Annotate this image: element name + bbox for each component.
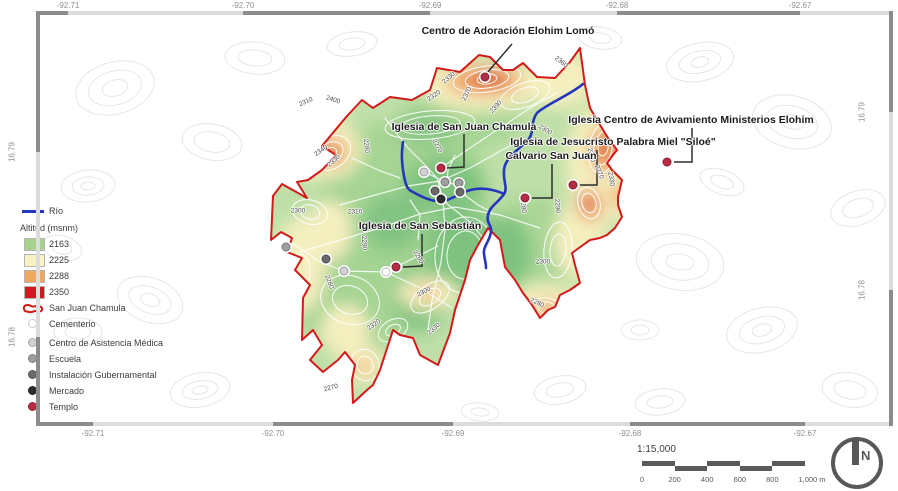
poi-dot-templo [437,164,446,173]
legend-value-2163: 2163 [49,239,69,249]
rio-line-symbol [22,210,44,213]
axis-label-top: -92.69 [419,1,442,10]
frame-bottom [630,422,805,426]
poi-dot-cementerio [382,268,391,277]
axis-label-bottom: -92.71 [82,429,105,438]
legend-swatch-2288 [24,270,45,283]
legend-label-mercado: Mercado [49,386,84,396]
poi-dot-templo [521,194,530,203]
map-label-elohim-lomo: Centro de Adoración Elohim Lomó [422,25,595,37]
axis-label-top: -92.67 [789,1,812,10]
frame-right [889,290,893,426]
map-label-calvario: Calvario San Juan [505,150,596,162]
map-label-san-sebastian: Iglesia de San Sebastián [359,220,482,232]
poi-dot-escuela [455,179,464,188]
north-arrow-label: N [861,448,870,463]
legend-value-2350: 2350 [49,287,69,297]
frame-top [800,11,893,15]
axis-label-bottom: -92.67 [794,429,817,438]
contour-label: 2300 [291,208,305,215]
frame-top [38,11,68,15]
poi-dot-templo [663,158,672,167]
scalebar-tick: 1,000 m [798,475,825,484]
frame-bottom [38,422,93,426]
frame-right [889,112,893,290]
frame-top [243,11,430,15]
frame-top [68,11,243,15]
axis-label-left: 16.79 [8,142,17,162]
axis-label-top: -92.71 [57,1,80,10]
legend-label-escuela: Escuela [49,354,81,364]
scalebar-segment [707,461,740,466]
poi-dot-templo [569,181,578,190]
contour-label: 2310 [348,209,362,216]
legend-swatch-2163 [24,238,45,251]
legend-value-2288: 2288 [49,271,69,281]
legend-rio-label: Río [49,206,63,216]
boundary-symbol [21,301,47,316]
legend-label-centro-asistencia: Centro de Asistencia Médica [49,338,163,348]
scalebar-segment [642,461,675,466]
contour-label: 2290 [360,236,368,251]
frame-left [36,11,40,152]
north-arrow-bar [852,439,859,465]
frame-bottom [93,422,273,426]
axis-label-bottom: -92.69 [442,429,465,438]
poi-dot-escuela [441,178,450,187]
scalebar-tick: 800 [766,475,779,484]
map-label-avivamiento: Iglesia Centro de Avivamiento Ministerio… [568,114,813,126]
legend-swatch-2350 [24,286,45,299]
axis-label-right: 16.79 [858,102,867,122]
legend-swatch-2225 [24,254,45,267]
contour-label: 2290 [553,198,561,213]
map-label-siloe: Iglesia de Jesucristo Palabra Miel "Silo… [510,136,715,148]
frame-top [430,11,617,15]
poi-dot-centro-asistencia [420,168,429,177]
scalebar-tick: 600 [734,475,747,484]
scalebar-segment [675,466,708,471]
frame-bottom [453,422,630,426]
frame-left [36,337,40,426]
contour-label: 2280 [362,138,370,153]
legend-value-2225: 2225 [49,255,69,265]
frame-bottom [273,422,453,426]
frame-left [36,152,40,337]
poi-dot-templo [392,263,401,272]
scalebar-segment [772,461,805,466]
frame-right [889,11,893,112]
frame-top [617,11,800,15]
axis-label-left: 16.78 [8,327,17,347]
poi-dot-instalacion-gubernamental [456,188,465,197]
scalebar-tick: 0 [640,475,644,484]
poi-dot-escuela [282,243,291,252]
legend-label-instalacion: Instalación Gubernamental [49,370,157,380]
axis-label-bottom: -92.68 [619,429,642,438]
scalebar-tick: 400 [701,475,714,484]
axis-label-top: -92.68 [606,1,629,10]
frame-bottom [805,422,893,426]
axis-label-bottom: -92.70 [262,429,285,438]
legend-altitude-title: Altitud (msnm) [20,223,78,233]
poi-dot-mercado [437,195,446,204]
contour-label: 2300 [536,259,550,266]
poi-dot-centro-asistencia [340,267,349,276]
map-label-san-juan-chamula-church: Iglesia de San Juan Chamula [392,121,537,133]
axis-label-top: -92.70 [232,1,255,10]
legend-label-templo: Templo [49,402,78,412]
map-export-canvas: 2310 2400 2330 2320 2370 2390 2360 2300 … [0,0,898,491]
legend-boundary-label: San Juan Chamula [49,303,126,313]
poi-dot-instalacion-gubernamental [322,255,331,264]
poi-dot-templo [481,73,490,82]
scalebar-segment [740,466,773,471]
scalebar-tick: 200 [668,475,681,484]
legend-label-cementerio: Cementerio [49,319,96,329]
scalebar-ratio: 1:15,000 [637,444,676,455]
axis-label-right: 16.78 [858,280,867,300]
